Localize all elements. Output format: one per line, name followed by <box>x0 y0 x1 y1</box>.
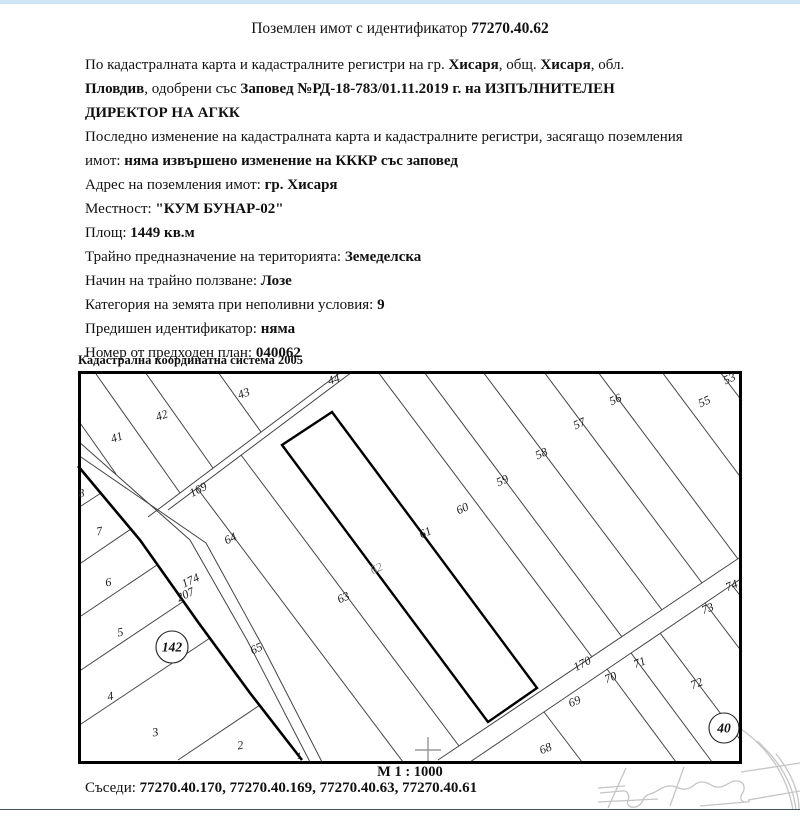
neighbors-line: Съседи: 77270.40.170, 77270.40.169, 7727… <box>85 780 477 797</box>
bottom-divider <box>0 809 800 810</box>
region-circle-label-142: 142 <box>162 640 183 655</box>
map-scale-label: М 1 : 1000 <box>78 764 742 781</box>
neighbors-label: Съседи: <box>85 780 140 796</box>
parcel-label-1: 1 <box>297 751 302 761</box>
cadastral-map: 14240 4142434453555657585960616263646516… <box>0 0 800 840</box>
cadastral-document-page: { "page": { "top_bar_color": "#cfe4f6" }… <box>0 0 800 840</box>
region-circle-label-40: 40 <box>716 721 731 736</box>
neighbors-value: 77270.40.170, 77270.40.169, 77270.40.63,… <box>140 780 478 796</box>
